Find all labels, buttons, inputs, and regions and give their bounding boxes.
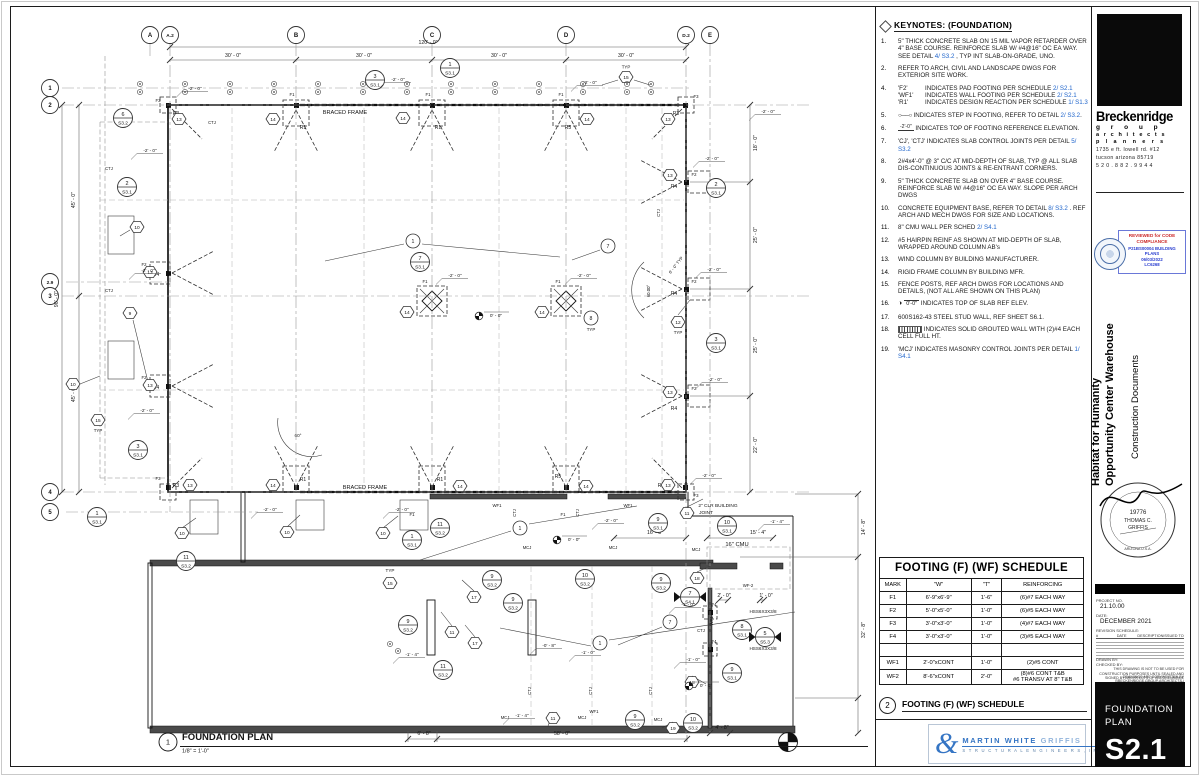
keynote-item: 13.WIND COLUMN BY BUILDING MANUFACTURER.	[881, 256, 1088, 263]
schedule-row: F25'-0"x5'-0"1'-0"(6)#5 EACH WAY	[880, 605, 1084, 618]
keynote-number: 1	[519, 526, 522, 532]
plan-label: R4	[671, 406, 678, 412]
schedule-divider	[876, 719, 1091, 720]
keynote-number: 14	[400, 116, 406, 122]
detail-number: 9	[657, 517, 660, 523]
keynote-item: 7.'CJ', 'CTJ' INDICATES SLAB CONTROL JOI…	[881, 138, 1088, 153]
plan-label: F4	[711, 639, 717, 644]
keynote-number: 17	[472, 641, 478, 647]
keynote-number: 13	[665, 483, 671, 489]
plan-label: WF1	[709, 616, 714, 626]
plan-label: 6' - 0" TYP	[668, 255, 685, 274]
engineer-name-block: MARTIN WHITE GRIFFIS S T R U C T U R A L…	[962, 736, 1109, 753]
plan-label: MCJ	[692, 547, 701, 552]
project-name-line-2: Opportunity Center Warehouse	[1104, 323, 1116, 486]
detail-sheet: S3.1	[92, 519, 102, 525]
keynote-number: 10	[284, 530, 290, 536]
keynote-number: 19	[670, 726, 676, 732]
plan-label: F2	[691, 172, 697, 177]
grid-label: C	[430, 33, 435, 39]
engineer-name: MARTIN WHITE GRIFFIS	[962, 736, 1109, 747]
plan-label: R3	[673, 111, 680, 117]
detail-sheet: S3.2	[656, 585, 666, 591]
schedule-row: F16'-9"x6'-9"1'-6"(6)#7 EACH WAY	[880, 592, 1084, 605]
plan-label: CTJ	[105, 288, 113, 293]
keynote-item: 4.'F2'INDICATES PAD FOOTING PER SCHEDULE…	[881, 85, 1088, 107]
plan-label: F1	[555, 279, 561, 284]
keynote-item: 18. INDICATES SOLID GROUTED WALL WITH (2…	[881, 326, 1088, 341]
detail-sheet: S3.2	[508, 605, 518, 611]
keynotes-list: 1.5" THICK CONCRETE SLAB ON 15 MIL VAPOR…	[881, 38, 1088, 360]
plan-label: MCJ	[523, 545, 532, 550]
elevation-flag: -2' - 0"	[141, 268, 155, 273]
elevation-flag: -2' - 0"	[448, 273, 462, 278]
keynote-number: 10	[70, 382, 76, 388]
titleblock-divider	[1091, 6, 1092, 767]
plan-label: CTJ	[648, 687, 653, 695]
plan-label: R1	[300, 477, 307, 483]
detail-sheet: S3.1	[415, 264, 425, 270]
dimension-text: 14' - 8"	[861, 519, 867, 535]
detail-number: 6	[122, 112, 125, 118]
dimension-text: 6' - 8"	[417, 731, 430, 737]
schedule-column-header: "T"	[971, 579, 1002, 592]
dimension-text: 4' - 8"	[715, 725, 728, 731]
keynote-number: 1	[412, 239, 415, 245]
plan-scale: 1/8" = 1'-0"	[182, 749, 209, 755]
schedule-column-header: "W"	[906, 579, 971, 592]
detail-sheet: S3.2	[630, 722, 640, 728]
grid-label: D.2	[682, 33, 690, 39]
keynote-item: 1.5" THICK CONCRETE SLAB ON 15 MIL VAPOR…	[881, 38, 1088, 60]
detail-sheet: S3.1	[737, 632, 747, 638]
dimension-text: 30' - 0"	[491, 53, 507, 59]
plan-label: CTJ	[208, 120, 216, 125]
grid-label: B	[294, 33, 299, 39]
schedule-row: WF12'-0"xCONT1'-0"(2)#5 CONT	[880, 657, 1084, 670]
spot-elevation-text: 0' - 0"	[568, 537, 581, 543]
plan-label: MCJ	[654, 717, 663, 722]
plan-label: HSS6X3X3/8	[749, 609, 777, 614]
svg-text:19776: 19776	[1130, 510, 1147, 516]
project-phase: Construction Documents	[1130, 355, 1141, 459]
plan-label: CTJ	[105, 166, 113, 171]
keynote-item: 6.-2'-0" INDICATES TOP OF FOOTING REFERE…	[881, 125, 1088, 134]
plan-text: TYP	[587, 327, 596, 332]
plan-label: R1	[437, 477, 444, 483]
plan-label: CTJ	[697, 628, 705, 633]
firm-architects: a r c h i t e c t s	[1096, 132, 1189, 138]
detail-number: 11	[437, 522, 443, 528]
code-compliance-stamp: REVIEWED for CODECOMPLIANCE P21BS00004 B…	[1094, 230, 1187, 276]
footing-schedule-table: FOOTING (F) (WF) SCHEDULEMARK"W""T"REINF…	[879, 557, 1084, 685]
project-no-value: 21.10.00	[1100, 603, 1125, 610]
schedule-column-header: MARK	[880, 579, 907, 592]
elevation-flag: -1' - 0"	[681, 602, 695, 607]
dimension-text: 120' - 0"	[419, 40, 438, 46]
keynote-number: 14	[583, 484, 589, 490]
keynote-item: 12.#5 HAIRPIN REINF AS SHOWN AT MID-DEPT…	[881, 237, 1088, 252]
detail-number: 9	[731, 667, 734, 673]
keynote-number: 13	[665, 117, 671, 123]
schedule-title: FOOTING (F) (WF) SCHEDULE	[880, 558, 1084, 579]
detail-number: 8	[741, 624, 744, 630]
keynote-number: 14	[270, 117, 276, 123]
plan-caption-title: FOUNDATION PLAN	[182, 732, 273, 743]
plan-label: F4	[711, 602, 717, 607]
detail-sheet: S3.2	[403, 627, 413, 633]
dimension-text: 25' - 0"	[753, 337, 759, 353]
plan-label: MCJ	[609, 545, 618, 550]
detail-number: 9	[491, 574, 494, 580]
plan-label: F2	[691, 279, 697, 284]
keynote-number: 11	[551, 716, 556, 722]
elevation-flag: -2' - 0"	[702, 473, 716, 478]
keynote-item: 15.FENCE POSTS, REF ARCH DWGS FOR LOCATI…	[881, 281, 1088, 296]
keynote-number: 15	[623, 75, 629, 81]
plan-label: R4	[671, 291, 678, 297]
detail-number: 10	[582, 573, 588, 579]
plan-text: TYP	[674, 330, 683, 335]
firm-address-2: tucson arizona 85719	[1096, 155, 1189, 161]
drawing-sheet: 6/3/2022 7:54:15 AM	[0, 0, 1200, 776]
plan-label: R5	[565, 125, 572, 131]
spot-elevation-text: 0' - 0"	[700, 683, 713, 689]
schedule-row: F33'-0"x3'-0"1'-0"(4)#7 EACH WAY	[880, 618, 1084, 631]
keynotes-title: KEYNOTES: (FOUNDATION)	[894, 20, 1012, 32]
engineer-logo: & MARTIN WHITE GRIFFIS S T R U C T U R A…	[928, 724, 1086, 764]
dimension-text: 2' - 0"	[717, 593, 730, 599]
keynote-item: 11.8" CMU WALL PER SCHED 2/ S4.1	[881, 224, 1088, 231]
elevation-flag: -2' - 0"	[188, 86, 202, 91]
keynote-number: 15	[387, 581, 393, 587]
schedule-row	[880, 644, 1084, 657]
detail-sheet: S3.2	[487, 582, 497, 588]
plan-caption-number: 1	[166, 738, 170, 747]
plan-label: F3	[693, 493, 699, 498]
detail-number: 2	[715, 182, 718, 188]
keynote-number: 14	[457, 484, 463, 490]
keynote-number: 14	[584, 117, 590, 123]
dimension-text: 58' - 0"	[554, 731, 570, 737]
elevation-flag: -2' - 0"	[395, 507, 409, 512]
schedule-row: WF28'-6"xCONT2'-0"(8)#6 CONT T&B #6 TRAN…	[880, 670, 1084, 685]
plan-label: F3	[693, 94, 699, 99]
plan-text: TYP	[622, 65, 631, 70]
divider-bar	[1095, 584, 1185, 594]
detail-number: 11	[440, 664, 446, 670]
foundation-plan-drawing: AA.2BCDD.2E122.9345120' - 0"30' - 0"30' …	[0, 0, 875, 776]
plan-text: TYP	[94, 428, 103, 433]
detail-number: 1	[96, 511, 99, 517]
elevation-flag: -2' - 0"	[143, 148, 157, 153]
detail-number: 9	[634, 714, 637, 720]
keynote-number: 7	[607, 244, 610, 250]
plan-label: R5	[555, 474, 562, 480]
keynotes-header: KEYNOTES: (FOUNDATION)	[881, 20, 1088, 32]
elevation-flag: -2' - 0"	[708, 377, 722, 382]
keynote-number: 10	[179, 531, 185, 537]
svg-text:GRIFFIS: GRIFFIS	[1128, 525, 1148, 531]
keynote-item: 17.600S162-43 STEEL STUD WALL, REF SHEET…	[881, 314, 1088, 321]
keynote-number: 12	[675, 320, 681, 326]
keynote-item: 10.CONCRETE EQUIPMENT BASE, REFER TO DET…	[881, 205, 1088, 220]
detail-sheet: S3.1	[653, 525, 663, 531]
detail-sheet: S3.2	[435, 530, 445, 536]
dimension-text: 45' - 0"	[71, 192, 77, 208]
grid-label: 2.9	[47, 280, 54, 286]
county-seal-icon	[1094, 238, 1126, 270]
firm-name: Breckenridge	[1096, 108, 1182, 124]
plan-label: 2" CLR BUILDING	[698, 503, 738, 509]
elevation-flag: -2' - 0"	[391, 77, 405, 82]
plan-label: F1	[425, 92, 431, 97]
elevation-flag: -1' - 4"	[770, 519, 784, 524]
plan-label: MCJ	[578, 715, 587, 720]
keynote-item: 8.2#4x4'-0" @ 3" C/C AT MID-DEPTH OF SLA…	[881, 158, 1088, 173]
keynote-number: 14	[270, 483, 276, 489]
detail-sheet: S3.1	[722, 528, 732, 534]
detail-sheet: S3.2	[181, 563, 191, 569]
dimension-text: 30' - 0"	[356, 53, 372, 59]
plan-label: CTJ	[527, 687, 532, 695]
elevation-flag: -1' - 4"	[405, 652, 419, 657]
plan-label: CTJ	[575, 509, 580, 517]
detail-number: 7	[419, 256, 422, 262]
plan-label: R1	[435, 125, 442, 131]
keynote-number: 13	[176, 117, 182, 123]
keynote-number: 7	[669, 620, 672, 626]
elevation-flag: -2' - 0"	[604, 518, 618, 523]
sheet-number: S2.1	[1105, 734, 1185, 767]
plan-label: CTJ	[656, 209, 661, 217]
architect-firm-block: Breckenridge g r o u p a r c h i t e c t…	[1092, 108, 1189, 169]
detail-number: 11	[183, 555, 189, 561]
keynote-number: 13	[147, 383, 153, 389]
dimension-text: 22' - 0"	[753, 437, 759, 453]
schedule-caption-title: FOOTING (F) (WF) SCHEDULE	[902, 699, 1087, 712]
date-value: DECEMBER 2021	[1100, 618, 1151, 625]
schedule-column-header: REINFORCING	[1002, 579, 1084, 592]
detail-number: 9	[407, 619, 410, 625]
keynote-number: 13	[667, 173, 673, 179]
plan-label: TYP	[386, 568, 395, 573]
plan-label: WF-2	[743, 583, 754, 588]
plan-label: CTJ	[512, 509, 517, 517]
elevation-flag: -2' - 0"	[577, 273, 591, 278]
detail-number: 9	[660, 577, 663, 583]
keynote-item: 16.◑ 0'-0" INDICATES TOP OF SLAB REF ELE…	[881, 300, 1088, 308]
detail-sheet: S3.1	[711, 345, 721, 351]
plan-label: WF1	[492, 503, 502, 508]
keynote-item: 5.○──○ INDICATES STEP IN FOOTING, REFER …	[881, 112, 1088, 120]
title-block: Breckenridge g r o u p a r c h i t e c t…	[1092, 6, 1189, 767]
keynote-number: 13	[667, 390, 673, 396]
detail-number: 1	[449, 62, 452, 68]
keynote-number: 15	[95, 418, 101, 424]
plan-label: 16" CMU	[725, 542, 748, 548]
detail-sheet: S3.2	[688, 725, 698, 731]
detail-sheet: S3.2	[438, 672, 448, 678]
detail-sheet: S3.1	[407, 542, 417, 548]
detail-sheet: S3.1	[370, 82, 380, 88]
detail-number: 3	[715, 337, 718, 343]
detail-sheet: S3.2	[118, 120, 128, 126]
detail-number: 7	[689, 591, 692, 597]
plan-label: BRACED FRAME	[343, 485, 388, 491]
plan-label: 60°	[295, 433, 302, 438]
keynote-number: 14	[539, 310, 545, 316]
schedule-row: F43'-0"x3'-0"1'-0"(3)#5 EACH WAY	[880, 631, 1084, 644]
grid-label: A	[148, 33, 153, 39]
plan-label: BRACED FRAME	[323, 110, 368, 116]
detail-sheet: S3.1	[122, 189, 132, 195]
divider	[1096, 192, 1184, 193]
dimension-text: 18' - 0"	[753, 135, 759, 151]
stamp-box: REVIEWED for CODECOMPLIANCE P21BS00004 B…	[1118, 230, 1186, 274]
dimension-text: 15' - 4"	[750, 530, 766, 536]
keynote-number: 11	[685, 511, 690, 517]
grid-label: E	[708, 33, 712, 39]
svg-text:THOMAS C.: THOMAS C.	[1124, 518, 1152, 524]
keynote-number: 10	[134, 225, 140, 231]
elevation-flag: -2' - 0"	[761, 109, 775, 114]
keynote-item: 9.5" THICK CONCRETE SLAB ON OVER 4" BASE…	[881, 178, 1088, 200]
plan-label: JOINT	[699, 510, 713, 516]
keynote-number: 18	[694, 576, 700, 582]
grid-label: D	[564, 33, 569, 39]
detail-number: 10	[724, 520, 730, 526]
detail-sheet: S3.1	[727, 675, 737, 681]
diamond-icon	[879, 20, 892, 33]
plan-label: R3	[173, 483, 180, 489]
elevation-flag: -2' - 0"	[707, 267, 721, 272]
detail-sheet: S3.2	[580, 581, 590, 587]
firm-planners: p l a n n e r s	[1096, 139, 1189, 145]
firm-address-1: 1735 e ft. lowell rd. #12	[1096, 147, 1189, 153]
plan-label: R1	[300, 125, 307, 131]
revision-schedule-label: REVISION SCHEDULE:	[1096, 628, 1139, 633]
plan-label: WF1	[589, 709, 599, 714]
dimension-text: 90' - 0"	[54, 291, 60, 307]
plan-label: R4	[671, 184, 678, 190]
signature-icon	[1100, 484, 1182, 506]
plan-dynamic-content: AA.2BCDD.2E122.9345120' - 0"30' - 0"30' …	[42, 27, 868, 755]
keynote-item: 19.'MCJ' INDICATES MASONRY CONTROL JOINT…	[881, 346, 1088, 361]
plan-label: F3	[155, 476, 161, 481]
footing-schedule: FOOTING (F) (WF) SCHEDULEMARK"W""T"REINF…	[879, 557, 1084, 685]
detail-sheet: S5.3	[760, 639, 770, 645]
detail-sheet: S3.1	[445, 70, 455, 76]
elevation-flag: -1' - 4"	[515, 713, 529, 718]
plan-label: F3	[155, 98, 161, 103]
detail-sheet: S3.1	[711, 190, 721, 196]
detail-number: 9	[512, 597, 515, 603]
firm-phone: 5 2 0 . 8 8 2 . 9 9 4 4	[1096, 163, 1189, 169]
schedule-caption-number: 2	[879, 697, 896, 714]
keynote-number: 14	[404, 310, 410, 316]
sheet-number-box: FOUNDATIONPLAN S2.1	[1095, 682, 1185, 767]
detail-number: 3	[374, 74, 377, 80]
plan-label: 60.00°	[646, 284, 651, 297]
detail-number: 5	[764, 631, 767, 637]
detail-number: 2	[126, 181, 129, 187]
elevation-flag: -1' - 0"	[686, 657, 700, 662]
plan-label: F1	[289, 92, 295, 97]
panel-divider	[875, 6, 876, 767]
detail-sheet: S3.1	[133, 452, 143, 458]
plan-label: CTJ	[588, 687, 593, 695]
dimension-text: 30' - 0"	[225, 53, 241, 59]
firm-group: g r o u p	[1096, 124, 1189, 131]
dimension-text: 30' - 0"	[618, 53, 634, 59]
keynote-number: 17	[471, 595, 477, 601]
grid-label: A.2	[166, 33, 174, 39]
elevation-flag: -2' - 0"	[263, 507, 277, 512]
schedule-caption: 2 FOOTING (F) (WF) SCHEDULE	[879, 697, 1087, 714]
dimension-text: 25' - 0"	[753, 227, 759, 243]
plan-label: F1	[422, 279, 428, 284]
engineer-seal: 19776 THOMAS C. GRIFFIS ARIZONA U.S.A.	[1094, 474, 1186, 568]
engineer-tagline: S T R U C T U R A L E N G I N E E R S , …	[962, 748, 1109, 753]
architect-logo	[1097, 14, 1182, 106]
plan-label: F1	[560, 512, 566, 517]
svg-text:ARIZONA U.S.A.: ARIZONA U.S.A.	[1124, 547, 1151, 551]
ampersand-logo-icon: &	[935, 729, 958, 759]
keynote-number: 9	[129, 311, 132, 317]
detail-number: 1	[411, 534, 414, 540]
elevation-flag: -1' - 0"	[581, 650, 595, 655]
dimension-text: 32' - 8"	[861, 622, 867, 638]
keynote-number: 11	[450, 630, 455, 636]
keynote-item: 2.REFER TO ARCH, CIVIL AND LANDSCAPE DWG…	[881, 65, 1088, 80]
keynotes-panel: KEYNOTES: (FOUNDATION) 1.5" THICK CONCRE…	[881, 20, 1088, 365]
keynote-number: 10	[380, 531, 386, 537]
plan-label: F1	[558, 92, 564, 97]
keynote-number: 1	[599, 641, 602, 647]
plan-static-geometry	[62, 47, 868, 752]
keynote-number: 13	[187, 483, 193, 489]
keynote-number: 8	[590, 316, 593, 322]
detail-number: 10	[690, 717, 696, 723]
spot-elevation-text: 0' - 0"	[490, 313, 503, 319]
plan-label: WF1	[623, 503, 633, 508]
detail-number: 3	[137, 444, 140, 450]
dimension-text: 1' - 0"	[759, 593, 772, 599]
elevation-flag: -2' - 0"	[140, 408, 154, 413]
keynote-item: 14.RIGID FRAME COLUMN BY BUILDING MFR.	[881, 269, 1088, 276]
elevation-flag: -0' - 8"	[542, 643, 556, 648]
elevation-flag: -2' - 0"	[705, 156, 719, 161]
